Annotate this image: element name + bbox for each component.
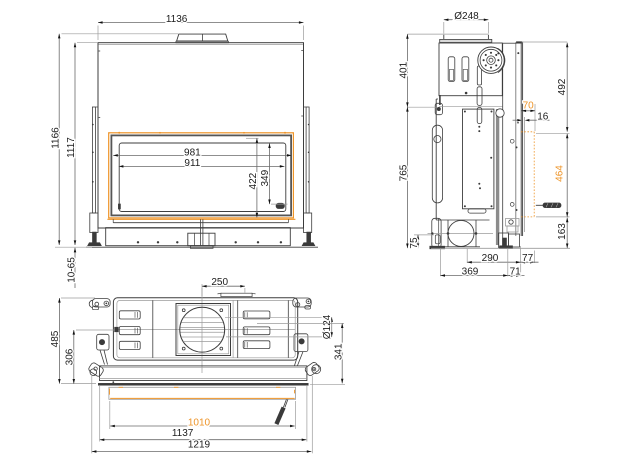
svg-text:341: 341 [334, 343, 345, 360]
svg-text:981: 981 [184, 147, 201, 158]
svg-text:485: 485 [50, 330, 61, 347]
svg-text:163: 163 [557, 223, 568, 240]
svg-text:1117: 1117 [66, 137, 77, 158]
svg-text:306: 306 [65, 348, 76, 365]
svg-text:10-65: 10-65 [66, 257, 77, 283]
svg-text:77: 77 [522, 253, 534, 264]
svg-text:Ø248: Ø248 [454, 11, 479, 22]
svg-text:422: 422 [248, 172, 259, 189]
svg-text:16: 16 [537, 112, 549, 123]
svg-text:401: 401 [399, 61, 410, 78]
svg-text:911: 911 [184, 158, 200, 169]
svg-text:369: 369 [462, 267, 479, 278]
svg-text:349: 349 [260, 169, 271, 186]
svg-text:464: 464 [555, 165, 566, 182]
svg-text:1219: 1219 [188, 439, 211, 450]
svg-text:290: 290 [482, 253, 499, 264]
svg-text:1137: 1137 [172, 428, 194, 439]
svg-text:1010: 1010 [188, 417, 211, 428]
svg-text:1136: 1136 [166, 14, 188, 25]
svg-text:70: 70 [523, 101, 535, 112]
svg-text:71: 71 [510, 266, 522, 277]
svg-text:250: 250 [211, 277, 228, 288]
svg-text:75: 75 [409, 237, 420, 249]
svg-text:765: 765 [399, 164, 410, 181]
svg-text:492: 492 [557, 78, 568, 95]
svg-text:1166: 1166 [50, 127, 61, 149]
svg-text:Ø124: Ø124 [322, 314, 333, 339]
